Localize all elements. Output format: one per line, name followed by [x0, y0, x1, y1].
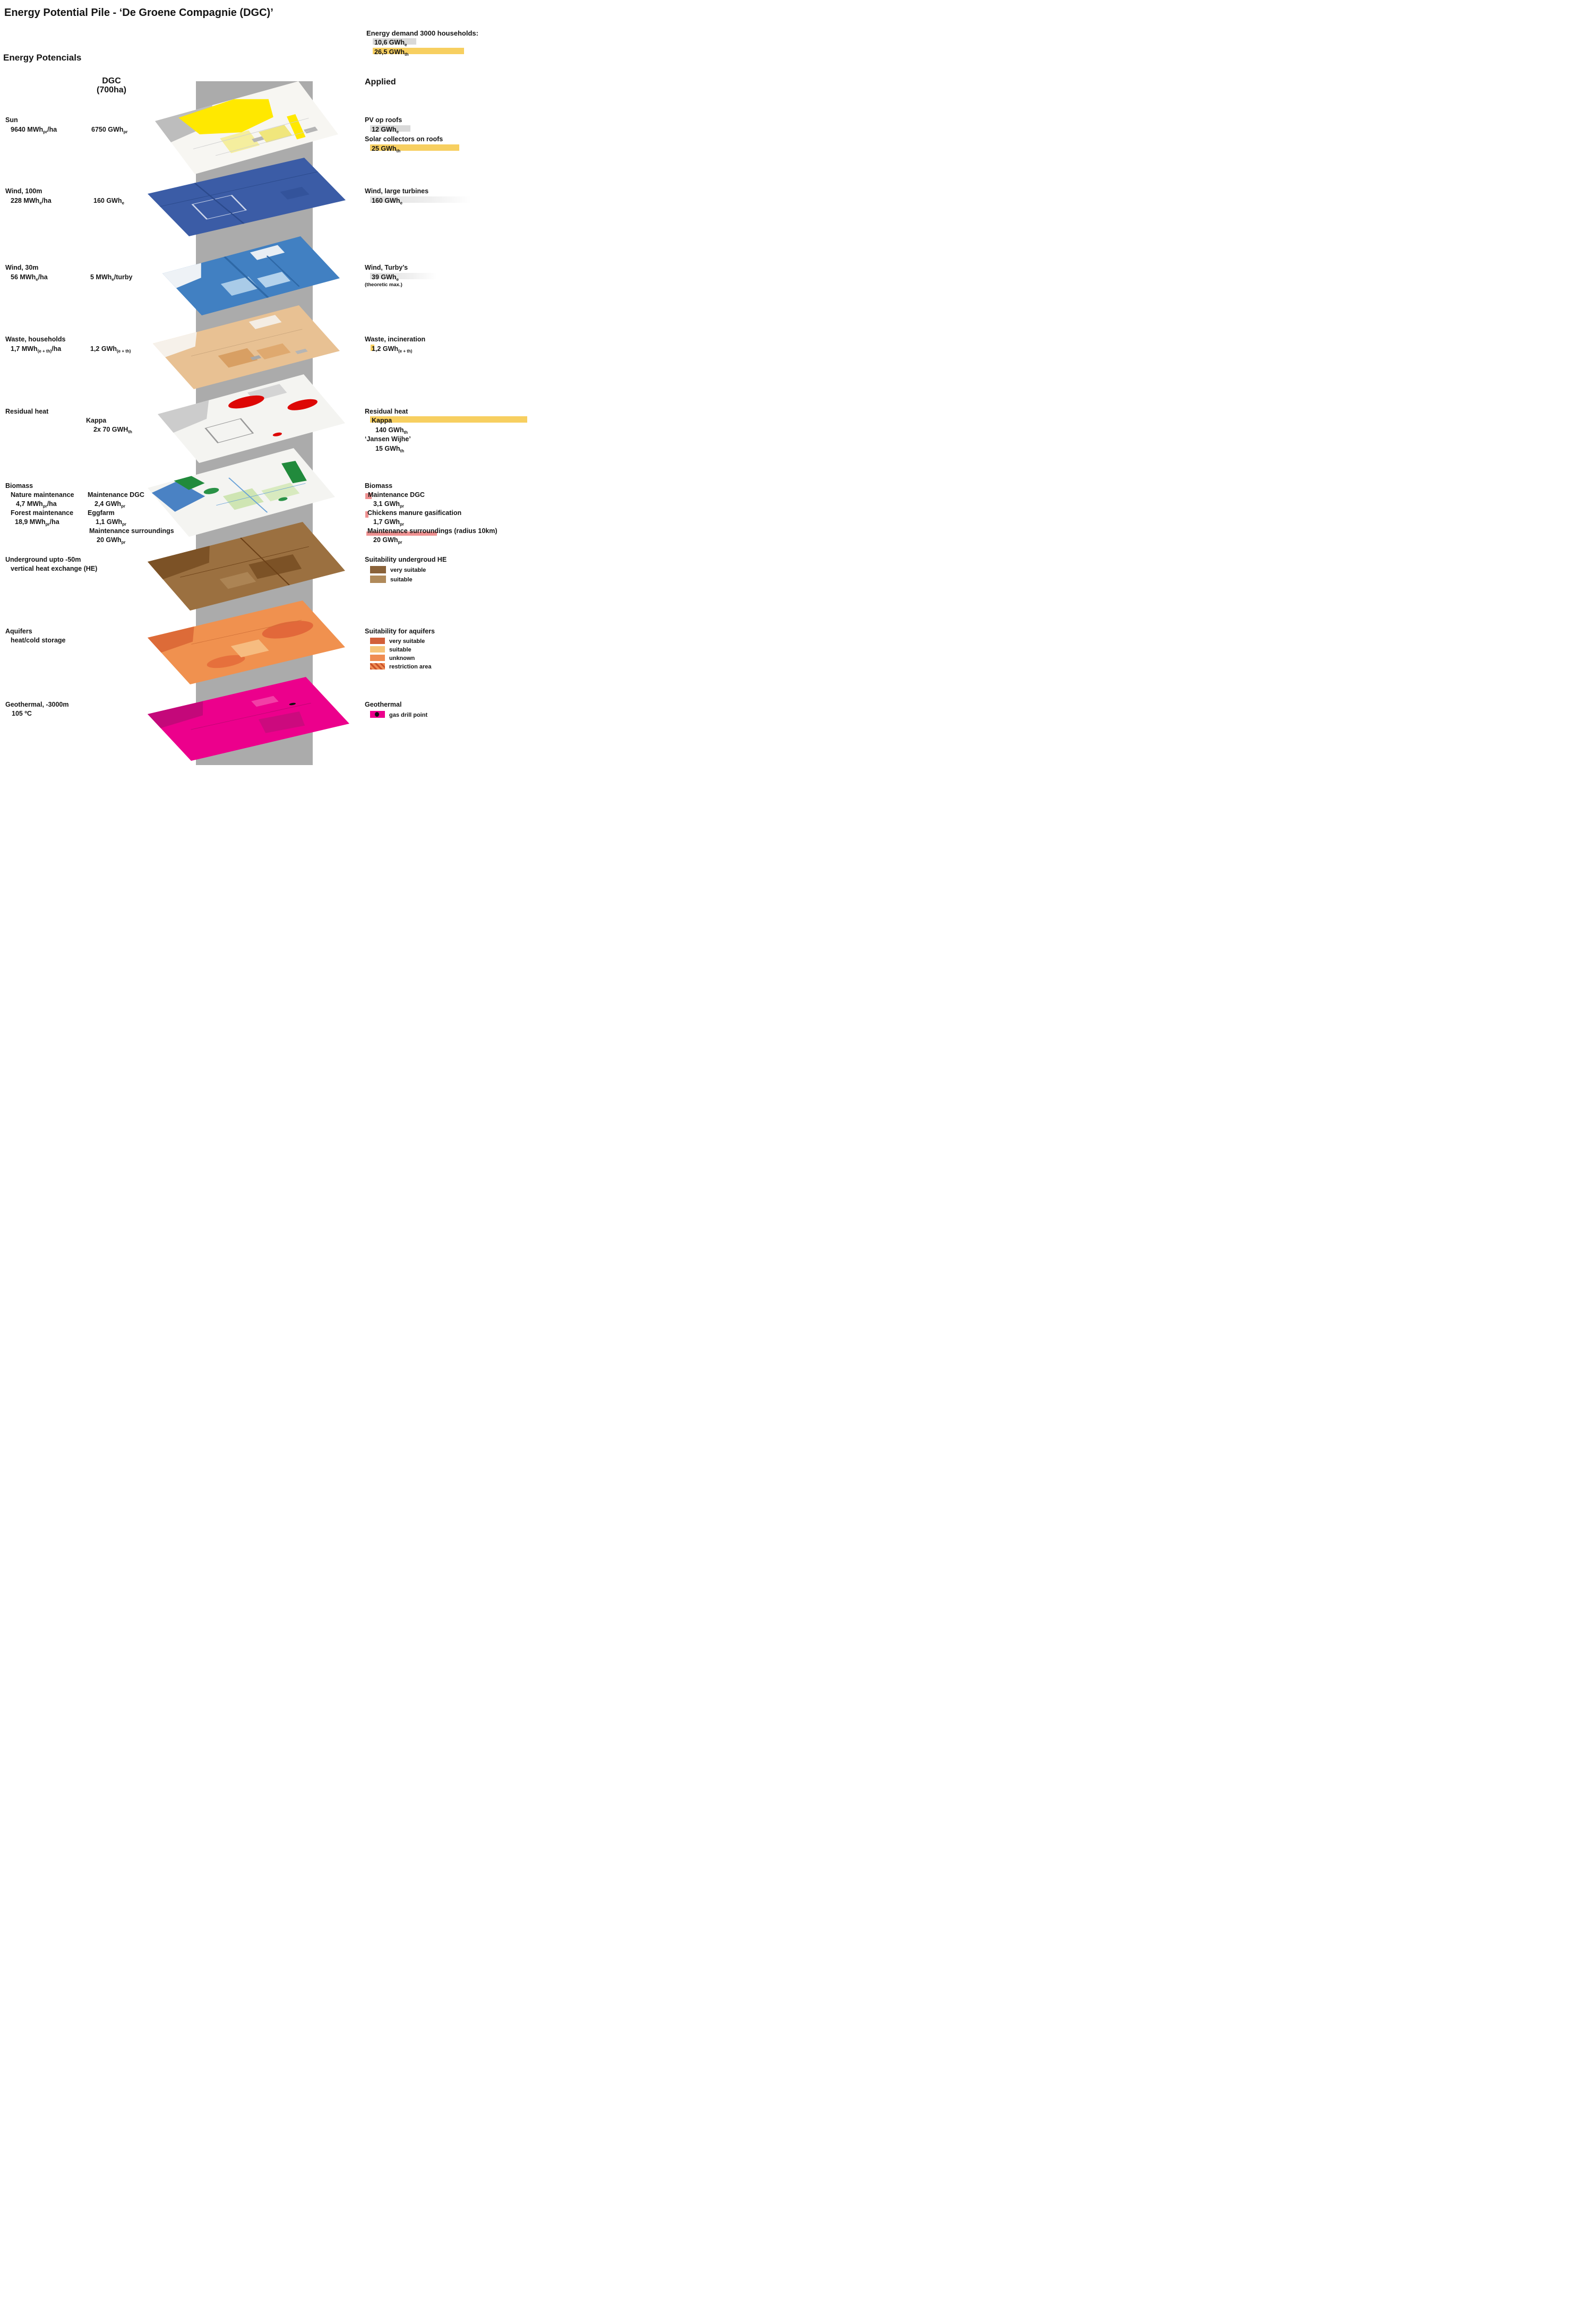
aquifers-suitable-swatch — [370, 646, 385, 653]
dgc-column-header: DGC (700ha) — [80, 77, 143, 95]
sun-label: Sun — [5, 117, 18, 124]
underground-label1: Underground upto -50m — [5, 556, 81, 563]
underground-suitable-label: suitable — [390, 577, 413, 583]
biomass-sub2: Forest maintenance — [11, 510, 73, 517]
biomass-dgc-value3: 20 GWhpr — [97, 537, 126, 544]
biomass-applied-value1: 3,1 GWhpr — [373, 501, 404, 508]
biomass-applied-value3: 20 GWhpr — [373, 537, 402, 544]
waste-per-ha: 1,7 MWh(e + th)/ha — [11, 346, 61, 353]
biomass-dgc-value1: 2,4 GWhpr — [95, 501, 125, 508]
wind100-label: Wind, 100m — [5, 188, 42, 195]
underground-legend-title: Suitability undergroud HE — [365, 556, 447, 563]
aquifers-unknown-swatch — [370, 655, 385, 661]
residual-dgc-total: 2x 70 GWHth — [93, 426, 132, 433]
underground-very-suitable-swatch — [370, 566, 386, 573]
aquifers-label1: Aquifers — [5, 628, 32, 635]
aquifers-very-suitable-swatch — [370, 638, 385, 644]
residual-applied-value1: 140 GWhth — [375, 427, 408, 434]
section-title: Energy Potencials — [3, 53, 81, 63]
aquifers-restriction-swatch — [370, 663, 385, 670]
underground-label2: vertical heat exchange (HE) — [11, 565, 97, 572]
biomass-dgc-item3: Maintenance surroundings — [89, 528, 174, 535]
biomass-dgc-item2: Eggfarm — [88, 510, 115, 517]
aquifers-suitable-label: suitable — [389, 647, 411, 654]
waste-applied-value: 1,2 GWh(e + th) — [372, 346, 412, 353]
residual-applied-item: Residual heat — [365, 408, 408, 415]
demand-thermal-value: 26,5 GWhth — [374, 49, 409, 56]
aquifers-restriction-label: restriction area — [389, 664, 431, 671]
dgc-header-line1: DGC — [102, 76, 121, 85]
wind30-label: Wind, 30m — [5, 264, 38, 271]
waste-dgc-total: 1,2 GWh(e + th) — [90, 346, 131, 353]
wind30-applied-note: (theoretic max.) — [365, 282, 402, 288]
sun-applied-item1: PV op roofs — [365, 117, 402, 124]
dgc-header-line2: (700ha) — [97, 85, 126, 95]
aquifers-label2: heat/cold storage — [11, 637, 66, 644]
aquifers-unknown-label: unknown — [389, 656, 415, 662]
sun-per-ha: 9640 MWhpr/ha — [11, 126, 57, 133]
biomass-applied-item1: Maintenance DGC — [368, 492, 425, 499]
geothermal-legend-title: Geothermal — [365, 701, 401, 708]
waste-label: Waste, households — [5, 336, 65, 343]
residual-applied-source2: ‘Jansen Wijhe’ — [365, 436, 411, 443]
biomass-dgc-item1: Maintenance DGC — [88, 492, 144, 499]
underground-suitable-swatch — [370, 576, 386, 583]
demand-electric-value: 10,6 GWhe — [374, 39, 407, 46]
biomass-applied-item2: Chickens manure gasification — [367, 510, 461, 517]
energy-potential-poster: Energy Potential Pile - ‘De Groene Compa… — [0, 0, 532, 770]
wind100-per-ha: 228 MWhe/ha — [11, 198, 52, 204]
biomass-applied-label: Biomass — [365, 483, 392, 490]
wind100-applied-value: 160 GWhe — [372, 198, 402, 204]
gas-drill-point-label: gas drill point — [389, 713, 427, 719]
biomass-applied-item3: Maintenance surroundings (radius 10km) — [367, 528, 497, 535]
biomass-sub1: Nature maintenance — [11, 492, 74, 499]
applied-column-header: Applied — [365, 78, 396, 87]
wind100-applied-item: Wind, large turbines — [365, 188, 428, 195]
residual-label: Residual heat — [5, 408, 48, 415]
wind100-dgc-total: 160 GWhe — [93, 198, 124, 204]
geothermal-label2: 105 ºC — [12, 710, 32, 717]
sun-dgc-total: 6750 GWhpr — [91, 126, 127, 133]
residual-applied-value2: 15 GWhth — [375, 445, 404, 452]
biomass-dgc-value2: 1,1 GWhpr — [96, 519, 126, 526]
kappa-highlight — [370, 416, 527, 423]
geothermal-label1: Geothermal, -3000m — [5, 701, 69, 708]
wind30-per-ha: 56 MWhe/ha — [11, 274, 48, 281]
wind30-applied-item: Wind, Turby’s — [365, 264, 408, 271]
aquifers-legend-title: Suitability for aquifers — [365, 628, 435, 635]
sun-applied-item2: Solar collectors on roofs — [365, 136, 443, 143]
biomass-applied-value2: 1,7 GWhpr — [373, 519, 404, 526]
waste-applied-item: Waste, incineration — [365, 336, 425, 343]
residual-applied-source1: Kappa — [372, 417, 392, 424]
gas-drill-point-swatch — [370, 711, 385, 718]
sun-applied-value1: 12 GWhe — [372, 126, 399, 133]
page-title: Energy Potential Pile - ‘De Groene Compa… — [4, 7, 273, 19]
wind30-applied-value: 39 GWhe — [372, 274, 399, 281]
sun-applied-value2: 25 GWhth — [372, 145, 400, 152]
residual-source: Kappa — [86, 417, 106, 424]
map-stack-graphic — [0, 0, 532, 770]
biomass-sub2-value: 18,9 MWhpr/ha — [15, 519, 59, 526]
wind30-per-turby: 5 MWhe/turby — [90, 274, 132, 281]
underground-very-suitable-label: very suitable — [390, 568, 426, 574]
biomass-sub1-value: 4,7 MWhpr/ha — [16, 501, 57, 508]
demand-heading: Energy demand 3000 households: — [366, 30, 478, 37]
aquifers-very-suitable-label: very suitable — [389, 639, 425, 645]
biomass-label: Biomass — [5, 483, 33, 490]
